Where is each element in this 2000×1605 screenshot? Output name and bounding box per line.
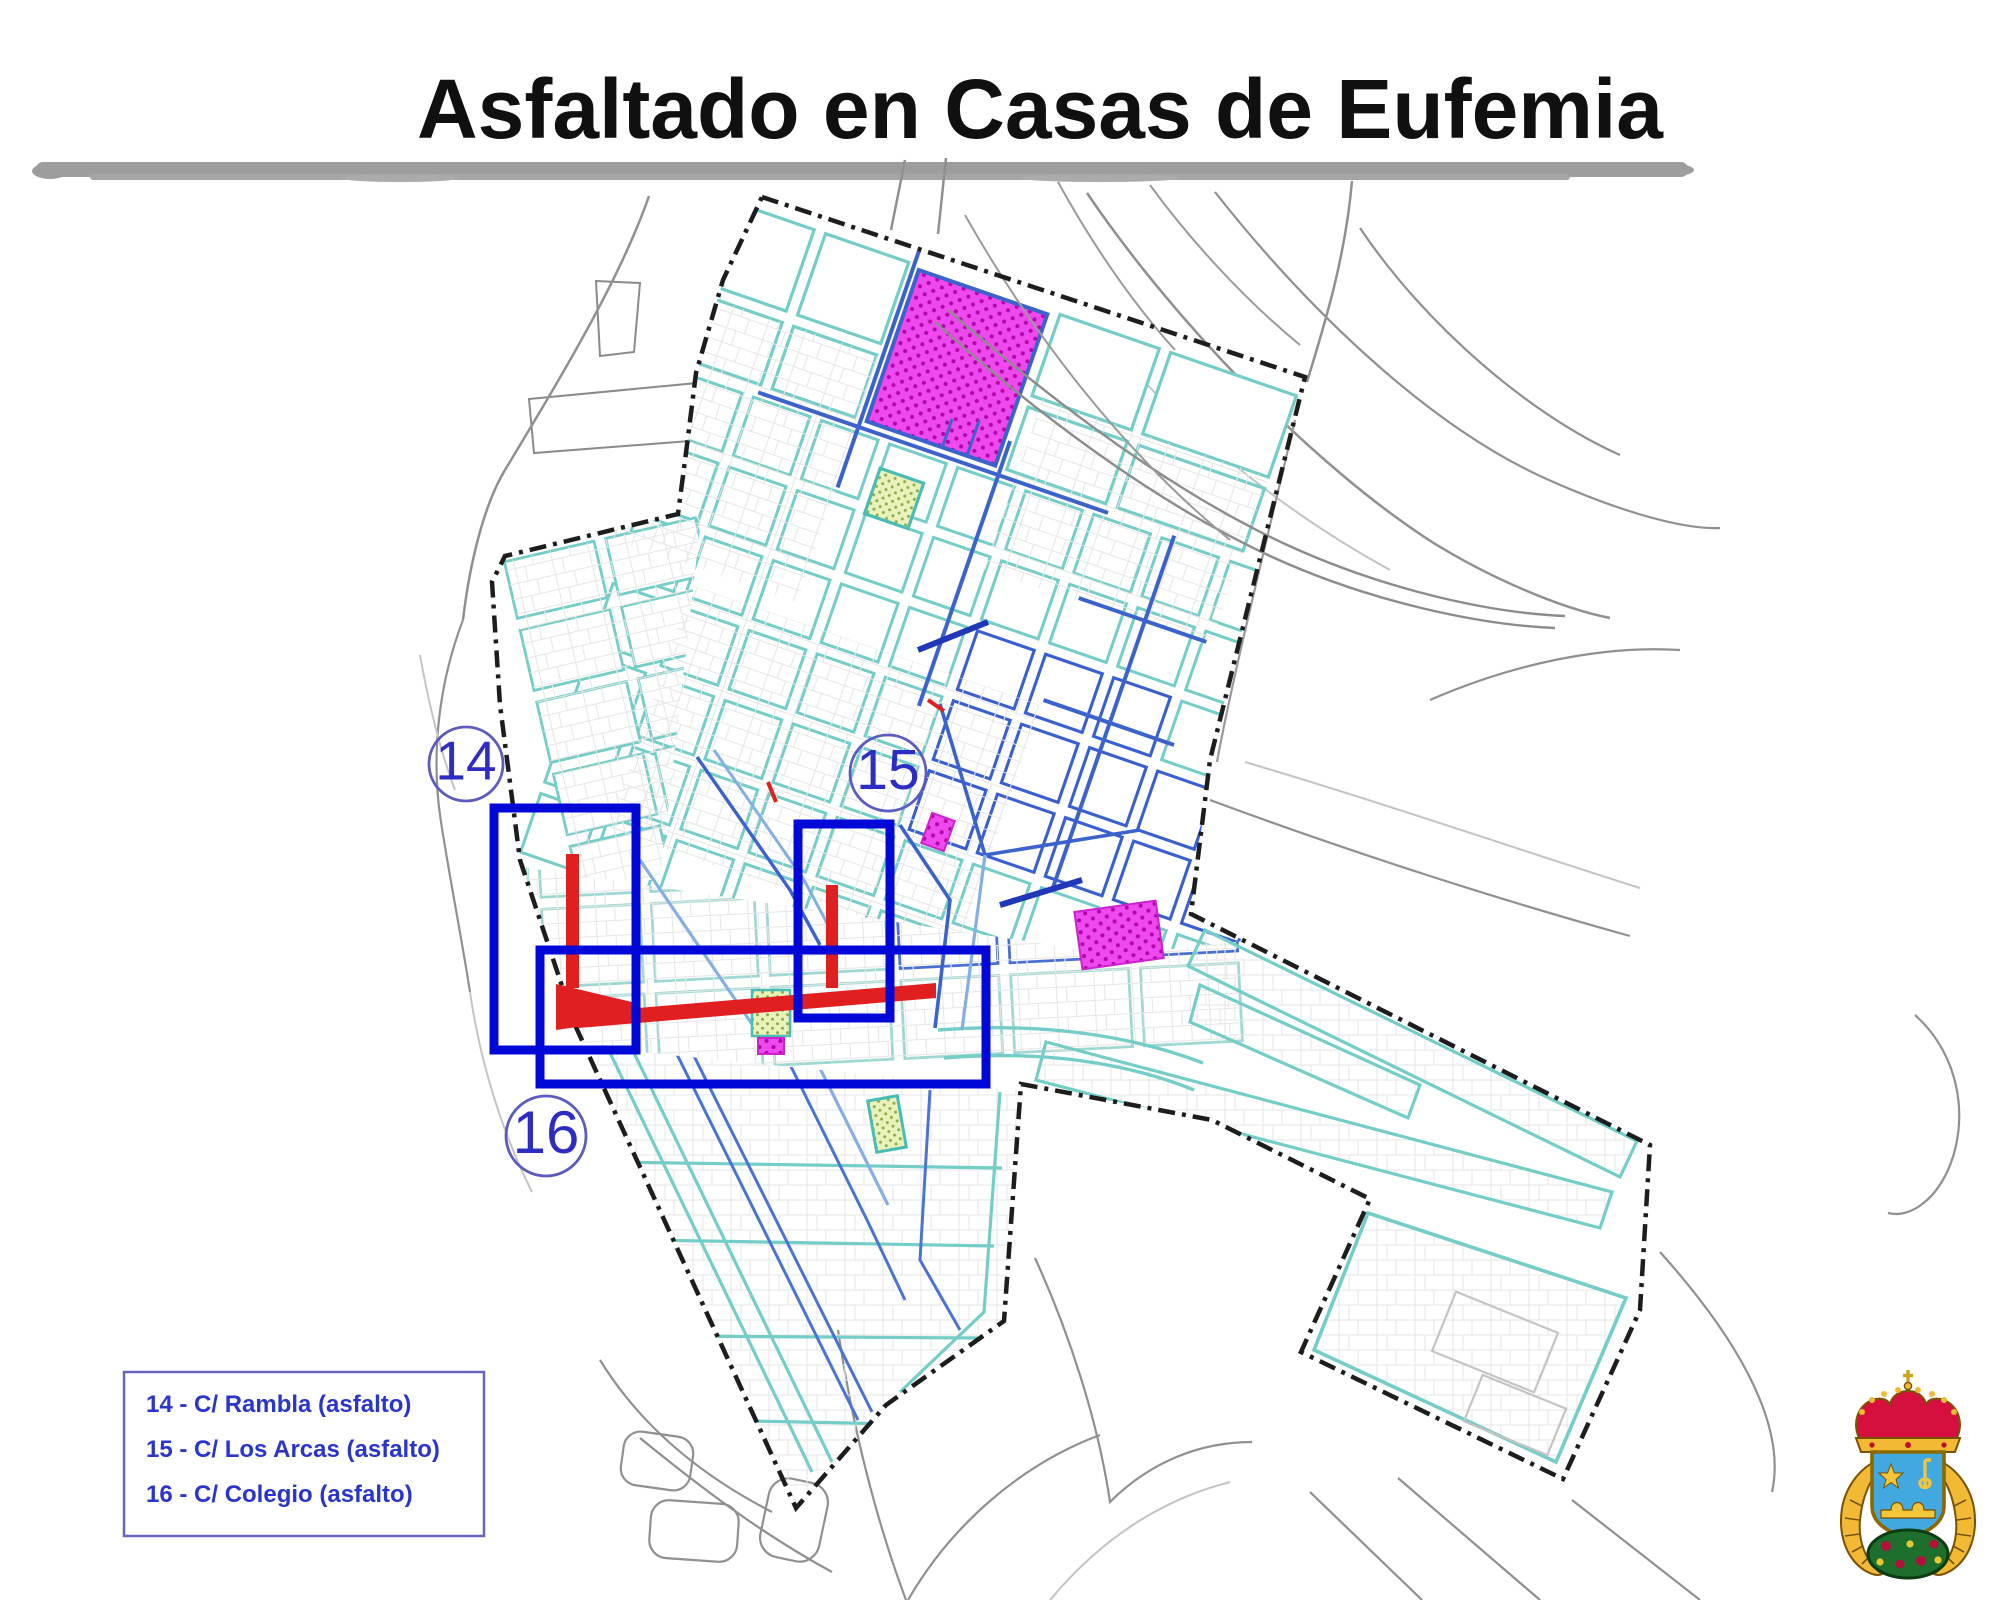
svg-text:16: 16 bbox=[513, 1099, 580, 1166]
svg-text:15 - C/ Los Arcas (asfalto): 15 - C/ Los Arcas (asfalto) bbox=[146, 1436, 440, 1463]
svg-text:16 - C/ Colegio (asfalto): 16 - C/ Colegio (asfalto) bbox=[146, 1481, 413, 1508]
svg-text:15: 15 bbox=[856, 738, 919, 802]
svg-text:14: 14 bbox=[435, 730, 496, 792]
svg-text:14 - C/ Rambla (asfalto): 14 - C/ Rambla (asfalto) bbox=[146, 1391, 411, 1418]
svg-text:Asfaltado en Casas de Eufemia: Asfaltado en Casas de Eufemia bbox=[417, 62, 1664, 156]
